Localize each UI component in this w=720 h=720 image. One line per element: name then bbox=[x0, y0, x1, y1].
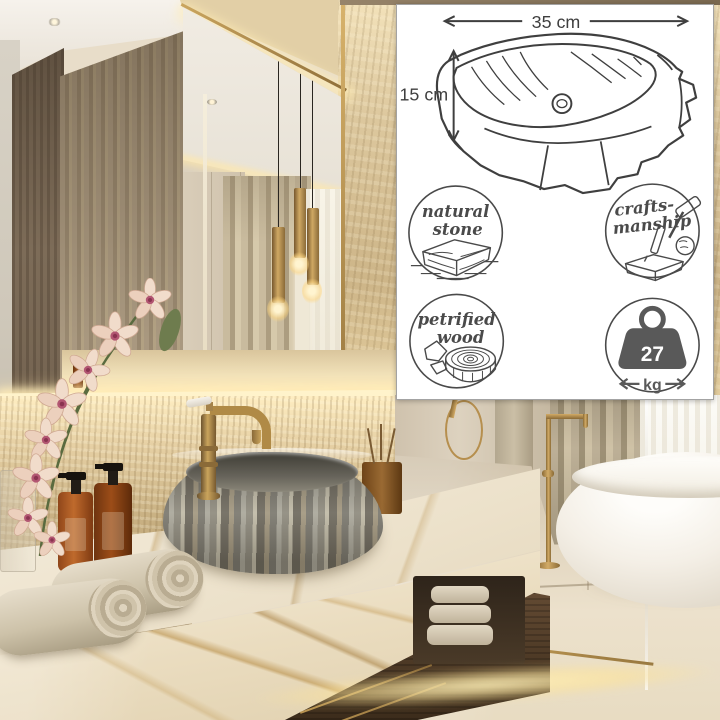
mirror-reflected-spotlight bbox=[207, 99, 217, 105]
diffuser-reed bbox=[380, 424, 382, 460]
folded-towel bbox=[427, 625, 493, 645]
pendant-light-glow bbox=[267, 296, 289, 322]
badge-craftsmanship: crafts- manship bbox=[606, 184, 702, 280]
product-photo: 35 cm 15 cm natural stone bbox=[0, 0, 720, 720]
pendant-light-glow bbox=[302, 278, 322, 304]
tub-filler-tip bbox=[583, 414, 588, 428]
badge-petrified-wood-line2: wood bbox=[437, 328, 485, 347]
height-arrow-icon bbox=[449, 51, 459, 140]
badge-natural-stone-line1: natural bbox=[422, 202, 489, 221]
folded-towel bbox=[431, 586, 489, 603]
weight-unit-label: kg bbox=[643, 377, 662, 394]
badge-petrified-wood-line1: petrified bbox=[418, 310, 497, 329]
gold-pendant-light bbox=[307, 208, 319, 285]
faucet-spout-tip bbox=[252, 430, 261, 444]
recessed-light-icon bbox=[48, 18, 61, 26]
pendant-cable bbox=[278, 42, 279, 228]
info-panel-graphics: 35 cm 15 cm natural stone bbox=[397, 5, 713, 399]
gold-pendant-light bbox=[272, 227, 285, 303]
brass-faucet-spout bbox=[210, 406, 271, 449]
sink-line-drawing bbox=[437, 34, 696, 193]
gold-pendant-light bbox=[294, 188, 306, 258]
badge-petrified-wood: petrified wood bbox=[410, 294, 503, 387]
badge-natural-stone: natural stone bbox=[409, 186, 502, 279]
badge-weight: 27 kg bbox=[606, 298, 699, 393]
tub-filler-handle bbox=[542, 470, 554, 477]
height-dimension-label: 15 cm bbox=[399, 85, 448, 105]
product-info-panel: 35 cm 15 cm natural stone bbox=[396, 4, 714, 400]
width-dimension-label: 35 cm bbox=[532, 12, 581, 32]
tub-filler-pole bbox=[546, 414, 551, 566]
folded-towel bbox=[429, 605, 491, 623]
badge-natural-stone-line2: stone bbox=[432, 220, 483, 239]
orchid-flowers bbox=[0, 278, 200, 578]
weight-value-label: 27 bbox=[641, 343, 664, 366]
tub-filler-spout bbox=[546, 414, 588, 419]
faucet-collar bbox=[197, 492, 220, 500]
vanity-shelf bbox=[413, 576, 525, 664]
faucet-band bbox=[199, 462, 218, 467]
pendant-light-glow bbox=[289, 252, 309, 276]
mirror-frame-right bbox=[341, 4, 345, 400]
